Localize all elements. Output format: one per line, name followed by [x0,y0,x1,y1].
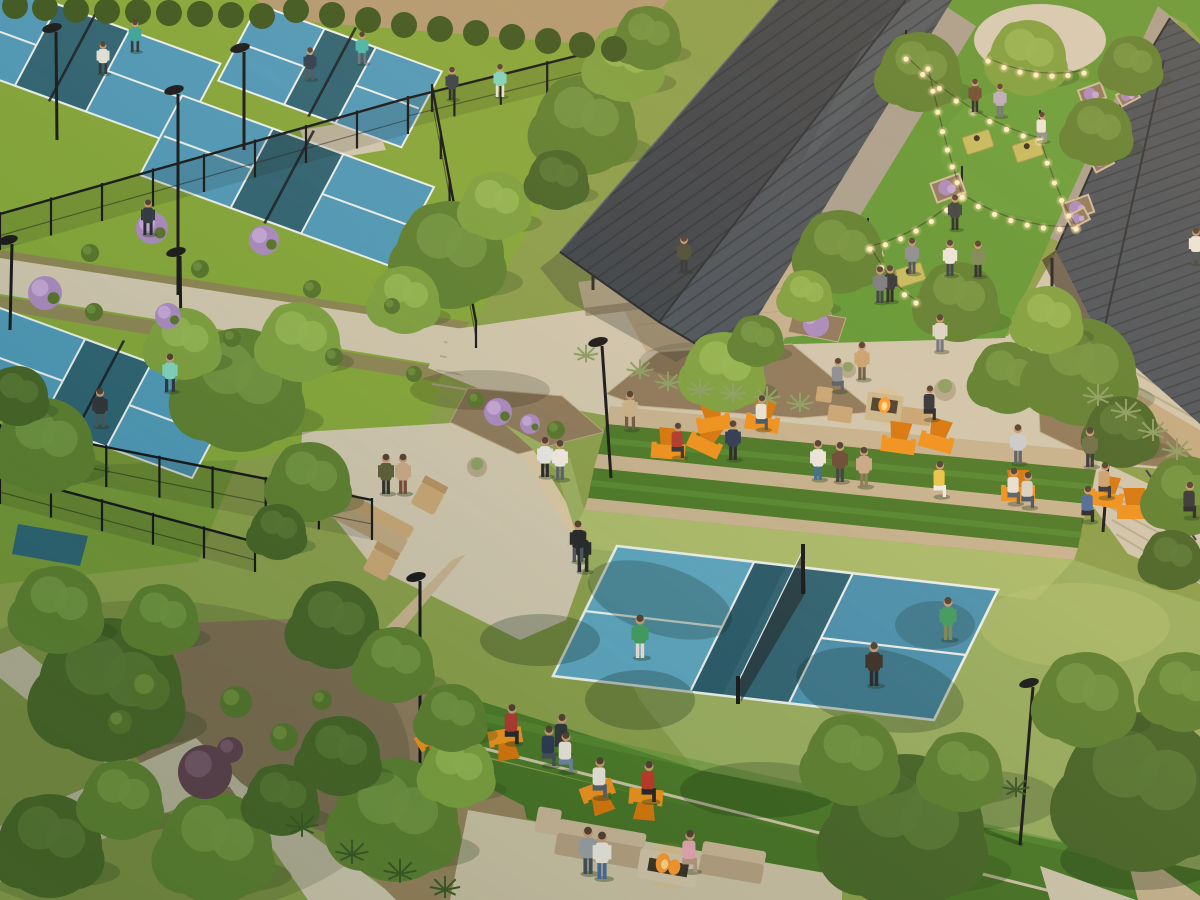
agave-leaf [1115,402,1126,413]
string-light-bulb [903,56,908,61]
agave-leaf [757,399,767,403]
tree-canopy-highlight [1136,750,1197,811]
planter-pot-plant [843,362,853,372]
agave-leaf [720,392,734,395]
tree-canopy [798,210,882,294]
person-hair [937,461,943,467]
person-head [946,240,954,248]
bulb-glow [899,289,911,301]
chair-seat [882,437,914,455]
person-leg [546,462,549,477]
person-shadow [812,477,829,482]
right-roof [1056,18,1200,424]
tree-canopy [792,236,842,286]
bulb-glow [951,177,963,189]
person-arm [854,353,856,364]
person-hair [975,241,981,247]
court-centerline [356,85,419,108]
person-shadow [555,751,574,757]
apron-sun-band [566,510,1074,600]
person-arm [832,453,835,465]
person-torso [358,39,367,53]
tree-canopy [722,361,766,405]
board-top [946,269,978,295]
person [575,530,594,574]
person [356,32,371,67]
tree-canopy [1171,552,1200,585]
spike-leaf [445,879,456,890]
tree-canopy [1154,458,1194,498]
tree-canopy-highlight [1056,663,1096,703]
planter-pot-plant [471,458,483,470]
person-arm [885,277,887,288]
patio-armchair [362,541,400,581]
hedge-shrub [499,24,525,50]
agave-shrub [687,378,714,398]
chair-back [752,398,777,419]
spike-leaf [290,816,302,828]
person-shadow [884,300,899,305]
spike-leaf [384,871,401,874]
person-shadow [1183,515,1200,520]
person-leg [583,857,587,874]
person [92,388,110,430]
purple-shrub [28,276,62,310]
tree-canopy [15,371,42,398]
agave-leaf [1083,395,1098,398]
terrace-wall-2 [594,454,1088,518]
person [552,440,570,483]
person-torso [868,652,880,671]
tree-ground-shadow [794,302,841,317]
person-shin [569,758,573,772]
person [97,41,112,76]
person-shadow [130,50,143,54]
person-head [132,20,139,27]
lamp-head [0,233,19,247]
shrub-body [217,737,243,763]
person-head [1084,486,1092,494]
chair-armrest [1117,503,1122,519]
person [1082,427,1100,469]
person-leg [685,259,688,272]
shrub-bloom-hi [487,401,501,415]
tree-canopy [234,337,290,393]
person-head [674,423,682,431]
tree-canopy [645,11,674,40]
person-shadow [571,559,588,564]
fence-rail [0,426,372,500]
court-side-pad [300,118,386,162]
person-leg [680,259,683,272]
person-torso [1007,477,1018,493]
person-head [96,389,104,397]
chair-back [658,427,681,446]
tree-canopy-highlight [581,99,619,137]
person-shin [943,485,946,497]
shrub-bloom [249,225,279,255]
bulb-glow [887,277,899,289]
tree-canopy [333,613,381,661]
tree-canopy-highlight [119,779,149,809]
tree [1009,286,1094,354]
person-shadow [142,233,157,238]
net-post-near [736,676,740,704]
tree [611,6,691,70]
tree-ground-shadow [706,381,778,403]
planter-box [853,240,883,265]
shrub-body [312,690,332,710]
tree-canopy [445,209,494,258]
person-hair [598,832,606,840]
purple-shrub [155,303,181,329]
tree-canopy-highlight [900,791,959,850]
tree-canopy [45,802,92,849]
tree-canopy-highlight [955,281,985,311]
person-leg [734,445,737,460]
street-lamp [165,245,187,420]
sofa-back [701,841,766,866]
person-leg [585,557,588,572]
chair-armrest [579,788,589,805]
person-shadow [1012,461,1028,466]
person-torso [942,607,954,626]
main-roof-eave-highlight [560,0,779,252]
lamp-pole [56,32,57,140]
tree-canopy [1045,291,1076,322]
person-head [558,715,567,724]
person-head [836,443,844,451]
spike-leaf [1003,787,1017,790]
person-leg [404,479,407,494]
right-pavilion-under-eave [1042,250,1100,344]
tree-canopy-highlight [18,806,62,850]
grand-stairs-treads [1100,478,1196,574]
tree-canopy [23,568,67,612]
atmosphere [0,0,1200,900]
string-light-bulb [1017,70,1022,75]
person-leg [891,288,894,302]
person-torso [834,451,845,469]
person [968,79,983,114]
sofa-seat [698,854,765,885]
agave-leaf [1115,413,1126,418]
string-light-bulb [920,72,925,77]
patio-sofa [326,488,414,554]
fence [432,84,476,348]
person-legs [505,731,517,737]
tree-canopy [366,287,407,328]
person [832,442,850,485]
person-leg [946,263,949,276]
purple-shrub [520,414,540,434]
tree-canopy [300,583,344,627]
bulb-glow [972,200,984,212]
tree-ground-shadow [390,307,451,326]
spike-leaf [1016,780,1026,790]
tree-canopy [393,655,435,697]
green-shrub [108,710,132,734]
fire-glow [862,382,907,427]
court-net [49,7,99,101]
purple-shrub [484,398,512,426]
person-head [144,200,151,207]
tree-canopy [902,811,988,897]
person [725,420,743,462]
tree-canopy-highlight [539,157,564,182]
bulb-glow [1041,157,1053,169]
person-arm [391,465,394,477]
person-head [926,386,934,394]
board-hole [1023,142,1031,150]
person-arm [107,51,109,61]
person-hair [557,440,564,447]
tree-canopy-highlight [804,282,824,302]
person-head [936,462,944,470]
tree-canopy [912,287,960,335]
tree-canopy [402,271,433,302]
tree-canopy [336,722,372,758]
adirondack-chair [627,788,664,822]
pickleball-court [139,85,440,269]
person-shadow [970,110,984,114]
person-head [626,392,634,400]
person [537,437,555,480]
bulb-glow [927,85,939,97]
planter-flowers [1082,86,1098,102]
tree-canopy [888,34,928,74]
person-leg [502,85,505,97]
tree-canopy [296,308,332,344]
spike-leaf [302,816,314,828]
lounge-sofa-right [698,841,767,885]
person-torso [1037,119,1046,132]
person-leg [399,479,402,494]
person-arm [968,88,970,98]
spike-leaf [286,825,303,828]
person-head [562,732,571,741]
person-arm [1010,436,1013,448]
person-arm [504,73,506,83]
tree-canopy [0,366,48,426]
spike-leaf [400,862,412,874]
shrub-leaf [532,424,539,431]
wine-shrub [217,737,243,763]
person-hair [937,314,943,320]
agave-shrub [574,345,598,363]
person-hair [100,41,105,46]
person-shin [603,784,607,798]
chair-armrest [880,435,887,452]
green-shrub [85,303,103,321]
court-surface [140,95,434,266]
person-shin [1044,132,1047,142]
fence-rail-lower [432,102,476,338]
tree-canopy [40,405,83,448]
string-light-bulb [1001,65,1006,70]
tree [388,201,523,309]
flame [667,858,682,876]
adirondack-chair [744,397,783,433]
tree-canopy [1059,119,1100,160]
tree-canopy-highlight [261,510,285,534]
spike-leaf [388,862,400,874]
shrub-body [220,686,252,718]
tree [27,618,207,762]
court-centerline [0,13,36,45]
tree-canopy [152,827,219,894]
tree-canopy [684,332,764,412]
person-torso [875,275,885,291]
person [395,454,413,497]
wood-sofa [896,406,932,427]
tree-canopy [1184,485,1200,529]
bulb-glow [1017,130,1029,142]
shrub-hi [305,282,314,291]
tree-ground-shadow [821,261,897,285]
person-legs [555,741,567,747]
chair-seat [581,778,614,801]
wine-shrub [178,745,232,799]
tree-canopy [880,32,960,112]
bulb-glow [900,53,912,65]
person-arm [971,251,973,262]
agave-leaf [640,369,654,372]
planter-box [1062,195,1094,221]
tree-canopy-highlight [436,744,466,774]
tree-canopy [429,738,465,774]
court-centerline [0,351,63,381]
chair-armrest [439,721,451,737]
person-head [886,266,894,274]
green-shrub [406,366,422,382]
person-torso [397,463,408,481]
person-hair [1039,112,1044,117]
shrub-leaf [266,239,277,250]
vegetation-layer [0,0,1200,900]
agave-leaf [1098,398,1109,403]
tree-ground-shadow [437,725,498,744]
tree-canopy [393,803,461,871]
person [542,726,561,769]
string-light-bulb [1049,74,1054,79]
person-hair [815,440,822,447]
person-torso [165,362,176,379]
agave-leaf [668,374,678,384]
street-lamp [405,570,427,775]
tree [325,758,480,882]
tree-canopy-highlight [1183,475,1200,505]
person-shadow [972,275,987,280]
person-head [399,455,407,463]
planter-flowers-hi [1076,204,1086,214]
strand-wire [870,246,916,300]
person-arm [993,93,995,103]
string-light-bulb [945,147,950,152]
person-shadow [94,424,110,429]
tree-canopy-highlight [97,769,131,803]
person-head [307,48,314,55]
planter-box [930,173,965,202]
tree [874,32,974,112]
tree-canopy [958,738,994,774]
tree-shadow [1060,830,1200,890]
tree-canopy [260,302,340,382]
agave-leaf [574,354,586,356]
bulb-glow [864,243,876,255]
string-light-bulb [898,236,903,241]
spike-leaf [336,852,353,855]
fire-glow [638,836,698,896]
person-leg [306,68,309,80]
hedge-shrub [355,7,381,33]
person-arm [677,246,679,257]
person-arm [895,276,897,287]
lamp-head [41,21,63,35]
tree-canopy-highlight [1181,671,1200,701]
person-hair [449,67,454,72]
person-head [685,831,694,840]
bulb-glow [950,95,962,107]
flame-core [660,859,669,870]
person-leg [1091,452,1094,467]
tree-canopy [780,270,832,322]
spike-leaf [388,874,400,879]
tree-ground-shadow [426,267,523,297]
person-arm [939,609,942,622]
shrub-bloom [28,276,62,310]
tree-canopy [692,334,732,374]
chair-seat [1090,491,1122,510]
person-torso [1098,471,1109,487]
tree-canopy-highlight [181,805,228,852]
person-shadow [580,871,600,877]
planter-flowers [1093,155,1106,168]
person-head [1039,113,1046,120]
person-head [1186,483,1194,491]
tree-canopy [621,32,655,66]
person-arm [579,840,582,854]
tree-ground-shadow [23,457,109,484]
tree-canopy [646,29,681,64]
planter-flowers-hi [1128,92,1136,100]
shrub-body [108,710,132,734]
tree-canopy [254,327,302,375]
bench-seat [827,404,853,423]
chair-armrest [918,430,927,447]
hedge-shrub [427,16,453,42]
person-arm [594,840,597,854]
tree [366,266,451,334]
person-shadow [682,869,702,875]
string-light-bulb [935,110,940,115]
tree-canopy [403,291,440,328]
person-torso [555,724,567,742]
tree-canopy [736,316,762,342]
tree-canopy [82,760,162,840]
agave-leaf [1087,398,1098,403]
agave-leaf [1177,441,1188,452]
green-shrub [81,244,99,262]
tree-canopy [545,78,595,128]
planter-flowers-hi [867,248,877,258]
person-legs [542,752,555,758]
sofa-back [334,488,414,539]
person-torso [495,72,504,86]
tree-canopy-highlight [212,818,255,861]
string-light-bulb [1004,127,1009,132]
tree-canopy [847,721,888,762]
